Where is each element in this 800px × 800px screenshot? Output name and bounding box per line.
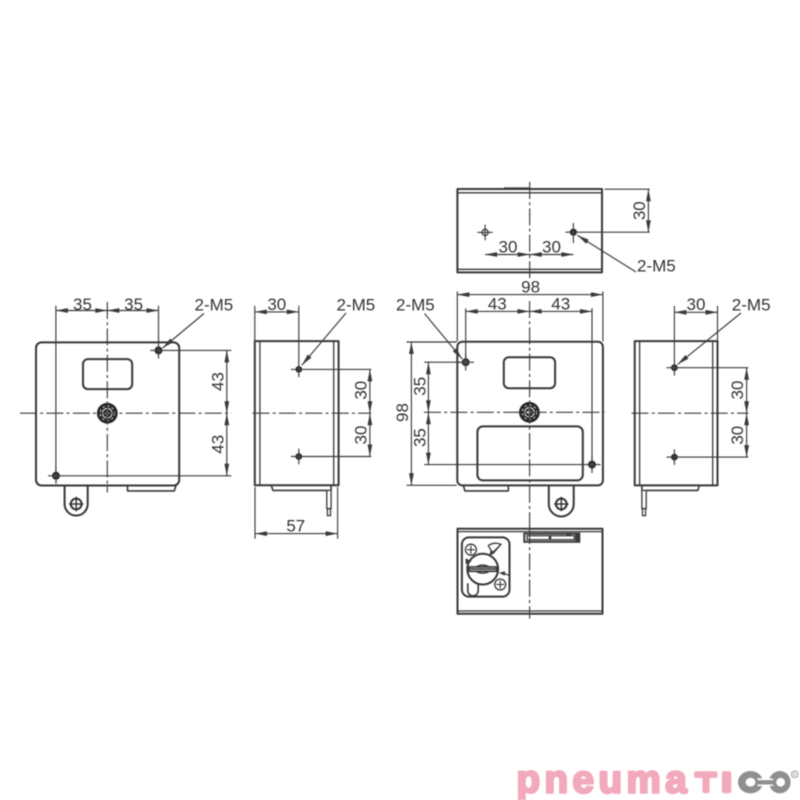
svg-text:30: 30	[267, 295, 286, 314]
svg-text:2-M5: 2-M5	[195, 295, 234, 314]
svg-text:30: 30	[542, 238, 561, 257]
svg-text:98: 98	[393, 403, 412, 422]
svg-text:pneuma: pneuma	[517, 759, 692, 800]
svg-text:35: 35	[124, 295, 143, 314]
svg-text:2-M5: 2-M5	[637, 256, 676, 275]
svg-text:2-M5: 2-M5	[396, 295, 435, 314]
svg-text:35: 35	[411, 377, 430, 396]
svg-text:35: 35	[411, 428, 430, 447]
svg-text:43: 43	[488, 295, 507, 314]
svg-text:2-M5: 2-M5	[732, 295, 771, 314]
svg-text:98: 98	[521, 277, 540, 296]
svg-text:30: 30	[499, 238, 518, 257]
svg-text:30: 30	[687, 295, 706, 314]
svg-text:30: 30	[630, 201, 649, 220]
svg-text:57: 57	[286, 517, 305, 536]
svg-text:43: 43	[208, 435, 227, 454]
svg-text:30: 30	[351, 381, 370, 400]
svg-text:30: 30	[728, 426, 747, 445]
svg-text:2-M5: 2-M5	[337, 295, 376, 314]
svg-text:30: 30	[351, 426, 370, 445]
svg-text:30: 30	[728, 381, 747, 400]
svg-text:43: 43	[551, 295, 570, 314]
svg-text:R: R	[793, 772, 797, 778]
svg-text:43: 43	[208, 372, 227, 391]
svg-text:35: 35	[73, 295, 92, 314]
